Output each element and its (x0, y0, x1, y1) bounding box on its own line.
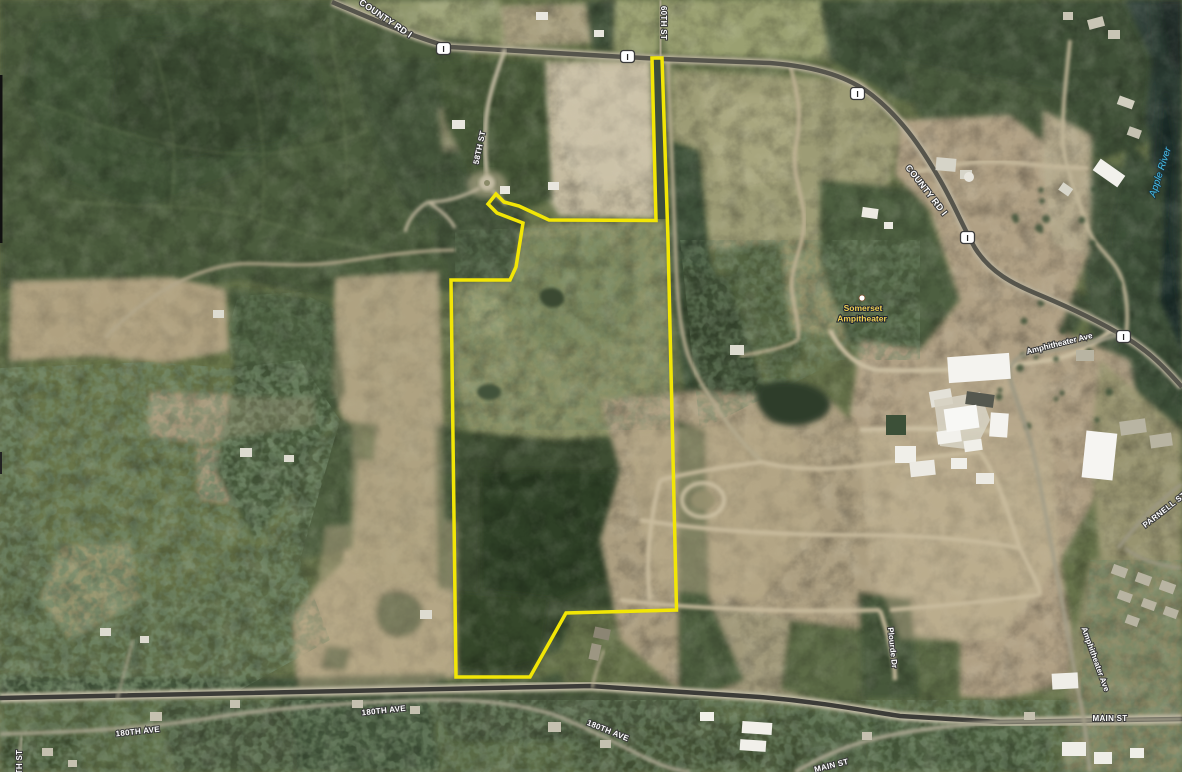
svg-text:I: I (1122, 332, 1124, 342)
svg-text:Ampitheater: Ampitheater (837, 314, 887, 324)
svg-text:Somerset: Somerset (844, 303, 883, 313)
svg-text:TH ST: TH ST (15, 750, 24, 772)
svg-text:I: I (626, 52, 628, 62)
svg-text:MAIN ST: MAIN ST (1093, 714, 1128, 723)
svg-text:I: I (442, 44, 444, 54)
svg-text:I: I (966, 233, 968, 243)
svg-text:60TH ST: 60TH ST (659, 6, 668, 40)
svg-text:I: I (856, 89, 858, 99)
